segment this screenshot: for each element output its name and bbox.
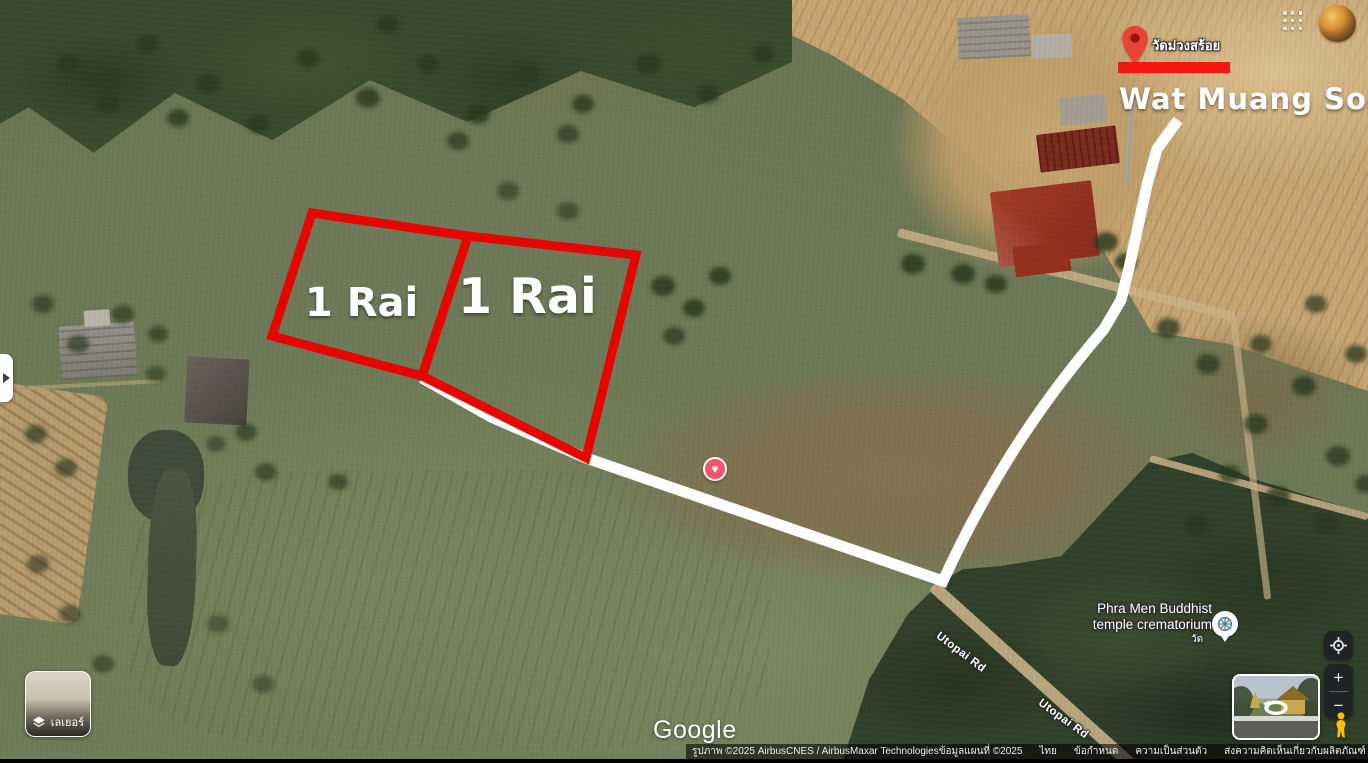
my-location-icon [1330,637,1347,654]
bottom-black-strip [0,759,1368,763]
destination-underline-bar [1118,62,1230,73]
side-panel-expand-button[interactable] [0,354,13,402]
zoom-control: + − [1324,664,1353,719]
destination-pin-icon[interactable] [1122,26,1148,64]
street-view-thumbnail[interactable] [1232,674,1320,740]
attribution-bar: รูปภาพ ©2025 AirbusCNES / AirbusMaxar Te… [686,744,1368,759]
poi-label: Phra Men Buddhist temple crematorium [1040,601,1212,633]
attribution-terms-link[interactable]: ข้อกำหนด [1074,744,1118,759]
plot-left-label: 1 Rai [305,280,418,326]
attribution-region-link[interactable]: ไทย [1039,744,1056,759]
layers-icon [32,715,46,730]
pegman-icon[interactable] [1331,712,1351,738]
plot-right-label: 1 Rai [458,268,597,325]
heart-glyph: ♥ [711,463,718,475]
destination-label-english: Wat Muang Soi [1119,82,1368,116]
poi-sublabel: วัด [1191,632,1203,647]
temple-poi-marker[interactable] [1212,611,1238,637]
layers-button[interactable]: เลเยอร์ [25,671,91,737]
chevron-right-icon [3,373,10,383]
saved-place-heart-icon[interactable]: ♥ [703,457,727,481]
destination-label-thai: วัดม่วงสร้อย [1152,35,1220,56]
thumbnail-tree [1232,686,1254,720]
attribution-privacy-link[interactable]: ความเป็นส่วนตัว [1135,744,1207,759]
layers-label: เลเยอร์ [51,713,84,731]
imagery-credit: รูปภาพ ©2025 AirbusCNES / AirbusMaxar Te… [692,744,1022,759]
attribution-feedback-link[interactable]: ส่งความคิดเห็นเกี่ยวกับผลิตภัณฑ์ [1224,744,1366,759]
temple-marker-pointer [1221,636,1229,642]
map-canvas[interactable]: 1 Rai 1 Rai วัดม่วงสร้อย Wat Muang Soi ♥… [0,0,1368,763]
poi-label-line1: Phra Men Buddhist [1097,601,1212,616]
poi-label-line2: temple crematorium [1093,617,1212,632]
google-logo[interactable]: Google [653,716,737,745]
account-avatar[interactable] [1319,5,1356,42]
zoom-in-button[interactable]: + [1324,664,1353,691]
dharma-wheel-icon [1216,615,1234,633]
my-location-button[interactable] [1324,631,1353,660]
rotate-360-icon [1261,698,1291,718]
google-apps-grid-icon[interactable] [1283,11,1303,31]
google-maps-satellite-view: 1 Rai 1 Rai วัดม่วงสร้อย Wat Muang Soi ♥… [0,0,1368,763]
